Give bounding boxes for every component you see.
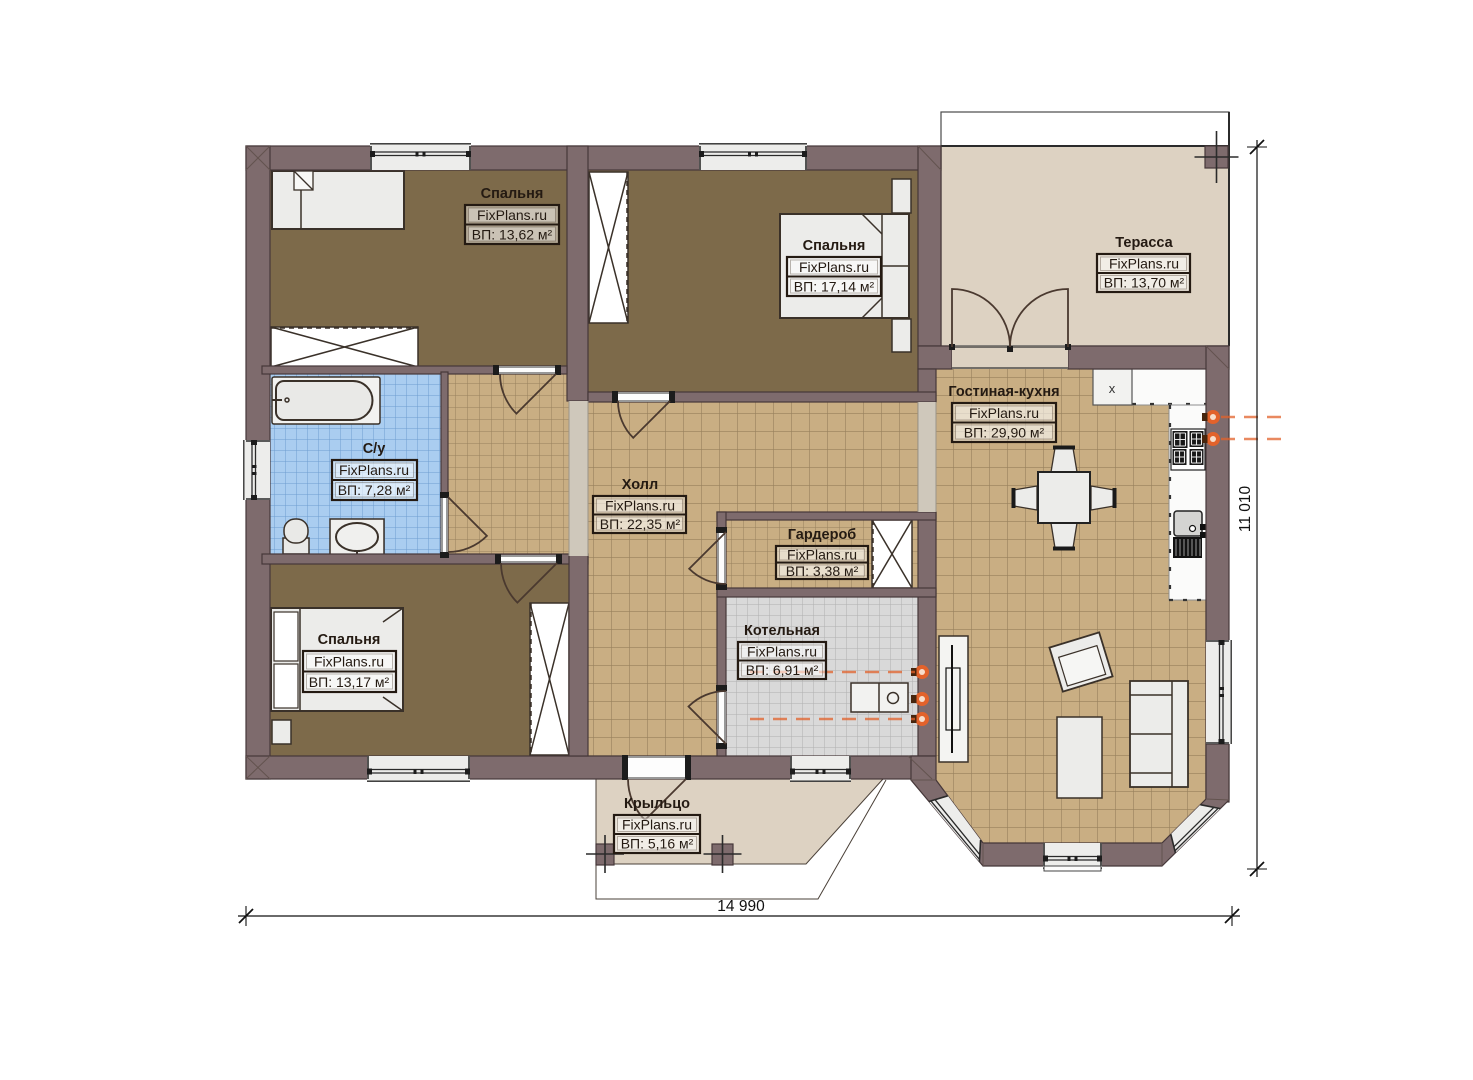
svg-text:FixPlans.ru: FixPlans.ru [1109, 256, 1179, 272]
svg-text:FixPlans.ru: FixPlans.ru [605, 497, 675, 513]
svg-text:Спальня: Спальня [318, 632, 381, 648]
svg-text:ВП: 13,17 м²: ВП: 13,17 м² [309, 674, 390, 690]
svg-text:Терасса: Терасса [1115, 235, 1173, 251]
svg-text:ВП: 7,28 м²: ВП: 7,28 м² [338, 482, 411, 498]
svg-text:ВП: 22,35 м²: ВП: 22,35 м² [600, 516, 681, 532]
svg-text:ВП: 13,62 м²: ВП: 13,62 м² [472, 226, 553, 242]
svg-text:х: х [1109, 381, 1116, 396]
svg-text:11 010: 11 010 [1237, 485, 1254, 532]
svg-text:ВП: 6,91 м²: ВП: 6,91 м² [746, 662, 819, 678]
svg-text:FixPlans.ru: FixPlans.ru [787, 546, 857, 562]
svg-text:Спальня: Спальня [803, 238, 866, 254]
svg-text:FixPlans.ru: FixPlans.ru [747, 643, 817, 659]
svg-text:FixPlans.ru: FixPlans.ru [799, 259, 869, 275]
svg-text:Гардероб: Гардероб [788, 527, 857, 543]
svg-text:14 990: 14 990 [717, 898, 765, 915]
svg-text:ВП: 29,90 м²: ВП: 29,90 м² [964, 424, 1045, 440]
svg-text:FixPlans.ru: FixPlans.ru [477, 207, 547, 223]
svg-text:С/у: С/у [363, 441, 386, 457]
svg-text:Холл: Холл [622, 477, 658, 493]
svg-text:ВП: 3,38 м²: ВП: 3,38 м² [786, 563, 859, 579]
svg-text:Крыльцо: Крыльцо [624, 796, 690, 812]
svg-text:FixPlans.ru: FixPlans.ru [622, 817, 692, 833]
svg-text:FixPlans.ru: FixPlans.ru [339, 462, 409, 478]
svg-text:ВП: 5,16 м²: ВП: 5,16 м² [621, 836, 694, 852]
svg-text:Гостиная-кухня: Гостиная-кухня [948, 384, 1059, 400]
svg-text:Спальня: Спальня [481, 186, 544, 202]
svg-text:Котельная: Котельная [744, 623, 820, 639]
svg-text:FixPlans.ru: FixPlans.ru [969, 405, 1039, 421]
svg-text:ВП: 13,70 м²: ВП: 13,70 м² [1104, 275, 1185, 291]
svg-text:ВП: 17,14 м²: ВП: 17,14 м² [794, 278, 875, 294]
svg-text:FixPlans.ru: FixPlans.ru [314, 653, 384, 669]
